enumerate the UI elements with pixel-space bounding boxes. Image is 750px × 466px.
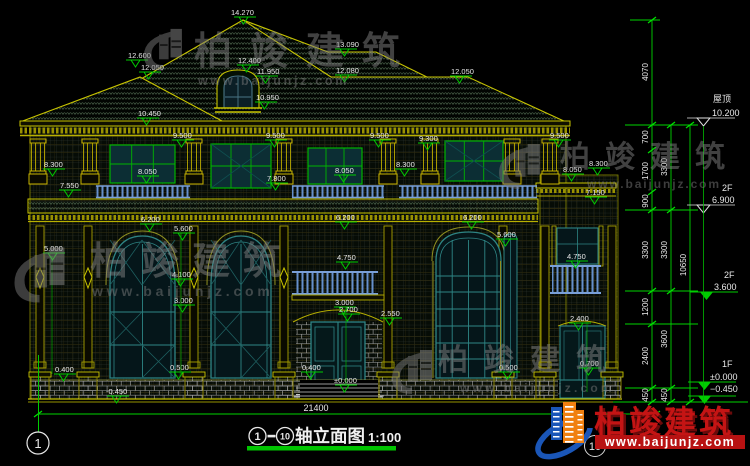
svg-text:10650: 10650: [679, 253, 688, 276]
svg-text:−0.450: −0.450: [710, 384, 738, 394]
svg-text:6.900: 6.900: [712, 195, 735, 205]
svg-text:0.500: 0.500: [170, 363, 189, 372]
svg-text:21400: 21400: [303, 403, 328, 413]
svg-text:2400: 2400: [641, 347, 650, 365]
svg-text:9.500: 9.500: [266, 131, 285, 140]
svg-text:±0.000: ±0.000: [710, 372, 737, 382]
svg-text:10.200: 10.200: [712, 108, 740, 118]
svg-text:www.baijunjz.com: www.baijunjz.com: [586, 177, 721, 191]
svg-text:柏竣建筑: 柏竣建筑: [438, 343, 622, 377]
svg-text:0.400: 0.400: [302, 363, 321, 372]
svg-text:-0.450: -0.450: [106, 387, 127, 396]
svg-text:2F: 2F: [722, 183, 733, 193]
svg-text:1: 1: [34, 436, 41, 451]
svg-text:10: 10: [280, 432, 290, 442]
svg-text:屋顶: 屋顶: [713, 94, 731, 104]
svg-text:450: 450: [660, 388, 669, 402]
svg-text:9.500: 9.500: [173, 131, 192, 140]
svg-text:7.800: 7.800: [267, 174, 286, 183]
svg-text:www.baijunjz.com: www.baijunjz.com: [197, 74, 349, 88]
svg-text:轴立面图: 轴立面图: [295, 426, 365, 446]
svg-text:柏竣建筑: 柏竣建筑: [194, 31, 418, 73]
svg-text:3300: 3300: [660, 241, 669, 259]
svg-text:5.600: 5.600: [497, 230, 516, 239]
svg-text:14.270: 14.270: [231, 8, 254, 17]
svg-text:4070: 4070: [641, 63, 650, 81]
svg-text:6.200: 6.200: [336, 213, 355, 222]
svg-text:1: 1: [254, 431, 260, 443]
svg-text:2.700: 2.700: [339, 305, 358, 314]
svg-text:±0.000: ±0.000: [334, 376, 357, 385]
svg-text:1F: 1F: [722, 359, 733, 369]
svg-text:900: 900: [641, 194, 650, 208]
svg-text:2F: 2F: [724, 270, 735, 280]
svg-text:8.050: 8.050: [335, 166, 354, 175]
svg-text:8.300: 8.300: [396, 160, 415, 169]
svg-text:9.500: 9.500: [550, 131, 569, 140]
svg-text:6.200: 6.200: [463, 213, 482, 222]
svg-text:6.200: 6.200: [141, 215, 160, 224]
svg-text:3.600: 3.600: [714, 282, 737, 292]
svg-text:9.500: 9.500: [370, 131, 389, 140]
svg-text:2.400: 2.400: [570, 314, 589, 323]
svg-text:8.300: 8.300: [44, 160, 63, 169]
svg-text:4.750: 4.750: [567, 252, 586, 261]
svg-text:8.050: 8.050: [138, 167, 157, 176]
svg-text:www.baijunjz.com: www.baijunjz.com: [91, 283, 274, 299]
svg-text:12.050: 12.050: [451, 67, 474, 76]
svg-text:www.baijunjz.com: www.baijunjz.com: [459, 381, 615, 395]
svg-text:柏竣建筑: 柏竣建筑: [560, 140, 740, 174]
svg-text:2.550: 2.550: [381, 309, 400, 318]
svg-text:10.450: 10.450: [138, 109, 161, 118]
svg-text:7.550: 7.550: [60, 181, 79, 190]
svg-text:9.300: 9.300: [419, 134, 438, 143]
svg-text:5.600: 5.600: [174, 224, 193, 233]
svg-text:3600: 3600: [660, 330, 669, 348]
svg-text:柏竣建筑: 柏竣建筑: [90, 241, 294, 283]
svg-text:1:100: 1:100: [368, 430, 401, 445]
svg-text:10.950: 10.950: [256, 93, 279, 102]
svg-text:www.baijunjz.com: www.baijunjz.com: [604, 435, 735, 449]
svg-text:450: 450: [641, 388, 650, 402]
svg-text:1200: 1200: [641, 298, 650, 316]
svg-text:4.750: 4.750: [337, 253, 356, 262]
svg-text:0.400: 0.400: [55, 365, 74, 374]
svg-text:3300: 3300: [641, 241, 650, 259]
